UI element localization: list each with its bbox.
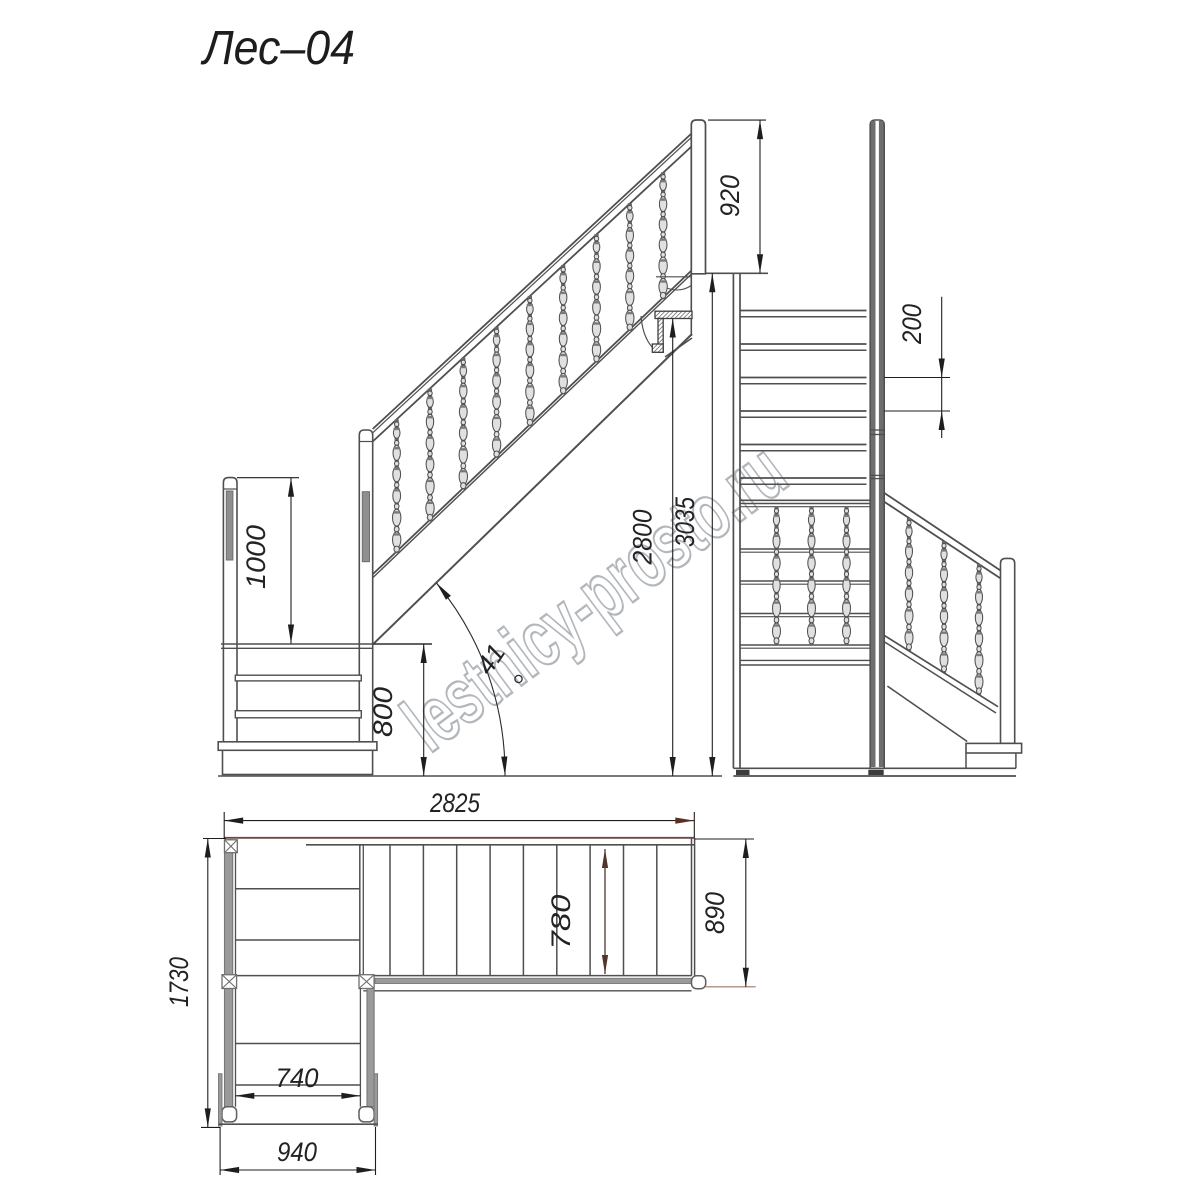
- svg-text:Лес–04: Лес–04: [200, 22, 355, 75]
- svg-text:3035: 3035: [670, 496, 700, 547]
- svg-text:920: 920: [715, 175, 745, 217]
- svg-text:740: 740: [276, 1063, 319, 1093]
- svg-text:780: 780: [546, 895, 576, 950]
- svg-text:1000: 1000: [241, 525, 271, 589]
- svg-text:2825: 2825: [429, 788, 481, 818]
- svg-text:940: 940: [277, 1137, 317, 1167]
- svg-text:1730: 1730: [164, 957, 194, 1007]
- svg-text:890: 890: [700, 892, 730, 934]
- svg-text:2800: 2800: [628, 510, 658, 566]
- svg-text:800: 800: [368, 687, 398, 737]
- svg-text:200: 200: [897, 304, 927, 345]
